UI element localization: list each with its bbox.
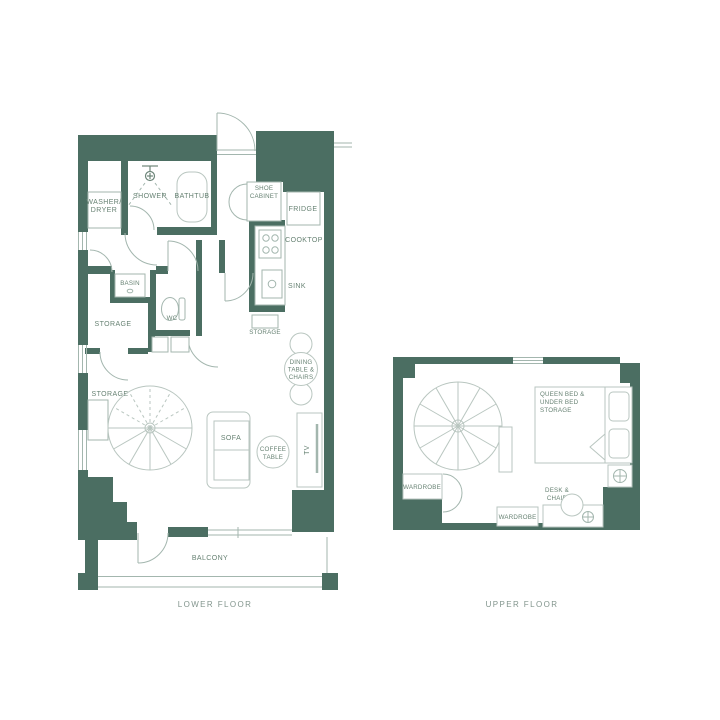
desk-chair-seat: [561, 494, 583, 516]
lower-outer-walls-shape: [78, 135, 217, 161]
balcony-railing-shape: [322, 573, 338, 590]
sink-label: SINK: [288, 283, 306, 290]
lower-outer-walls-shape: [85, 540, 98, 573]
cooktop-shape: [259, 230, 281, 258]
wc-cabinet: [171, 337, 189, 352]
upper-outer-walls-shape: [543, 357, 620, 364]
window: [79, 430, 87, 470]
entrance-door-shape: [217, 113, 255, 151]
shower-area: SHOWER: [128, 166, 172, 206]
lower-outer-walls-shape: [78, 135, 88, 232]
upper-window: [513, 358, 543, 364]
coffee-table: COFFEE TABLE: [257, 436, 289, 468]
spiral-staircase-upper-shape: [436, 426, 458, 464]
lower-interior-walls-shape: [85, 348, 100, 354]
lower-outer-walls-shape: [292, 490, 334, 532]
shower-head-icon: [142, 166, 158, 181]
spiral-staircase-upper-shape: [420, 404, 458, 426]
nightstand: [608, 465, 632, 487]
lower-outer-walls-shape: [78, 477, 113, 502]
cooktop: [259, 230, 281, 258]
lower-interior-walls-shape: [88, 266, 112, 274]
upper-closet-door-shape: [443, 474, 462, 493]
lower-interior-walls-shape: [249, 305, 285, 312]
floor-plan-canvas: SHOWER BATHTUB WASHER/ DRYER SHOE CABINE…: [0, 0, 720, 720]
spiral-staircase-lower-shape: [129, 392, 150, 428]
spiral-staircase-lower-shape: [150, 392, 171, 428]
upper-closet-door: [443, 474, 462, 512]
lower-outer-walls-shape: [78, 250, 88, 345]
queen-bed: QUEEN BED & UNDER BED STORAGE: [535, 387, 632, 463]
spiral-staircase-upper-shape: [436, 388, 458, 426]
kitchen-sink-shape: [262, 270, 282, 298]
dining-chair: [290, 333, 312, 355]
kitchen-storage-box: [252, 315, 278, 328]
hall-door: [188, 337, 218, 367]
pillow: [609, 392, 629, 421]
spiral-staircase-lower-shape: [150, 428, 186, 449]
spiral-staircase-upper-shape: [458, 426, 480, 464]
spiral-staircase-upper-shape: [458, 426, 496, 448]
pillow: [609, 429, 629, 458]
washer-dryer: WASHER/ DRYER: [86, 192, 121, 228]
kitchen-counter: COOKTOP SINK STORAGE: [249, 226, 323, 336]
lower-interior-walls-shape: [249, 220, 255, 308]
bathtub: BATHTUB: [175, 172, 210, 222]
spiral-staircase-lower-shape: [150, 428, 171, 464]
desk-chair: DESK & CHAIR: [543, 487, 603, 527]
washer-dryer-label-2: DRYER: [91, 207, 117, 214]
shoe-cabinet-label-1: SHOE: [255, 185, 273, 192]
spiral-staircase-lower: [108, 386, 192, 470]
upper-outer-walls-shape: [603, 487, 640, 530]
shower-door-shape: [130, 206, 154, 230]
balcony-door: [138, 533, 168, 563]
upper-floor: QUEEN BED & UNDER BED STORAGE WARDROBE W…: [393, 357, 640, 609]
coffee-table-label-2: TABLE: [263, 454, 283, 461]
shower-label: SHOWER: [133, 193, 167, 200]
spiral-staircase-upper: [414, 382, 512, 472]
washer-dryer-label-1: WASHER/: [86, 199, 121, 206]
lower-interior-walls-shape: [128, 348, 148, 354]
spiral-staircase-upper-shape: [458, 404, 496, 426]
spiral-staircase-lower-shape: [114, 407, 150, 428]
sofa: SOFA: [207, 412, 250, 488]
wardrobe-bottom-label: WARDROBE: [499, 514, 537, 521]
window: [79, 232, 87, 250]
living-room-door-shape: [225, 273, 253, 301]
dining-set: DINING TABLE & CHAIRS: [285, 333, 318, 405]
shoe-cabinet: SHOE CABINET: [229, 182, 281, 221]
queen-bed-label-3: STORAGE: [540, 407, 572, 414]
living-storage-label: STORAGE: [92, 391, 129, 398]
kitchen-storage-label: STORAGE: [249, 329, 281, 336]
cooktop-label: COOKTOP: [285, 237, 323, 244]
sofa-label: SOFA: [221, 435, 241, 442]
fridge-label: FRIDGE: [289, 206, 318, 213]
shoe-cabinet-shape: [229, 202, 247, 220]
storage-room-door-shape: [100, 352, 128, 380]
lower-outer-walls-shape: [256, 131, 334, 182]
desk-chair-label-1: DESK &: [545, 487, 570, 494]
wc-cabinet: [152, 337, 168, 352]
hall-storage-label: STORAGE: [95, 321, 132, 328]
basin: BASIN: [115, 274, 145, 297]
tv-label: TV: [304, 445, 311, 455]
balcony-railing: [78, 573, 338, 590]
dining-label-3: CHAIRS: [289, 374, 314, 381]
basin-label: BASIN: [120, 280, 140, 287]
fridge: FRIDGE: [287, 192, 320, 225]
lower-interior-walls-shape: [196, 240, 202, 336]
dining-chair: [290, 383, 312, 405]
wc-door-shape: [168, 241, 198, 271]
wardrobe-left-label: WARDROBE: [403, 484, 441, 491]
spiral-staircase-lower-shape: [114, 428, 150, 449]
upper-outer-walls-shape: [393, 498, 442, 530]
coffee-table-label-1: COFFEE: [260, 446, 286, 453]
lower-interior-walls-shape: [156, 266, 168, 274]
wardrobe-bottom: WARDROBE: [497, 507, 538, 526]
spiral-staircase-lower-shape: [129, 428, 150, 464]
upper-closet-door-shape: [443, 493, 462, 512]
bathroom-door-shape: [125, 233, 157, 265]
queen-bed-label-2: UNDER BED: [540, 399, 579, 406]
storage-room-door: [100, 352, 128, 380]
living-storage-shape: [88, 400, 108, 440]
spiral-staircase-upper-shape: [458, 388, 480, 426]
living-room-door: [225, 273, 253, 301]
shoe-cabinet-label-2: CABINET: [250, 193, 278, 200]
hall-door-shape: [188, 337, 218, 367]
bathroom-door: [125, 233, 157, 265]
spiral-staircase-upper-shape: [420, 426, 458, 448]
tv-unit: TV: [297, 413, 322, 487]
floor-plan-svg: SHOWER BATHTUB WASHER/ DRYER SHOE CABINE…: [0, 0, 720, 720]
lower-interior-walls-shape: [110, 297, 150, 303]
toilet-shape: [179, 298, 185, 320]
balcony-railing-shape: [78, 573, 98, 590]
shoe-cabinet-shape: [229, 184, 247, 202]
lower-outer-walls-shape: [78, 373, 88, 430]
upper-outer-walls-shape: [393, 357, 415, 378]
lower-outer-walls-shape: [168, 527, 208, 537]
upper-floor-title: UPPER FLOOR: [486, 600, 559, 609]
bathtub-label: BATHTUB: [175, 193, 210, 200]
lower-outer-walls-shape: [324, 192, 334, 492]
lower-outer-walls-shape: [78, 470, 88, 477]
lower-outer-walls-shape: [78, 522, 137, 540]
lower-interior-walls-shape: [219, 240, 225, 273]
dining-label-1: DINING: [290, 359, 313, 366]
dining-label-2: TABLE &: [288, 367, 315, 374]
wc-label: WC: [167, 315, 178, 322]
lower-interior-walls-shape: [150, 330, 190, 336]
lower-interior-walls-shape: [150, 270, 156, 336]
queen-bed-label-1: QUEEN BED &: [540, 391, 585, 398]
balcony-door-shape: [138, 533, 168, 563]
balcony-label: BALCONY: [192, 555, 228, 562]
wc-door: [168, 241, 198, 271]
toilet: WC: [152, 298, 189, 353]
spiral-staircase-lower-shape: [150, 407, 186, 428]
lower-floor-title: LOWER FLOOR: [178, 600, 253, 609]
kitchen-sink: [262, 270, 282, 298]
outlet-symbol: [583, 512, 594, 523]
lower-interior-walls-shape: [157, 227, 217, 235]
lower-outer-walls-shape: [283, 182, 334, 192]
wardrobe-left: WARDROBE: [403, 474, 442, 499]
lower-interior-walls-shape: [121, 160, 128, 235]
shower-door: [130, 206, 154, 230]
lower-outer-walls-shape: [78, 502, 127, 522]
lower-interior-walls-shape: [211, 161, 217, 231]
lower-floor: SHOWER BATHTUB WASHER/ DRYER SHOE CABINE…: [78, 113, 352, 609]
stair-landing: [499, 427, 512, 472]
